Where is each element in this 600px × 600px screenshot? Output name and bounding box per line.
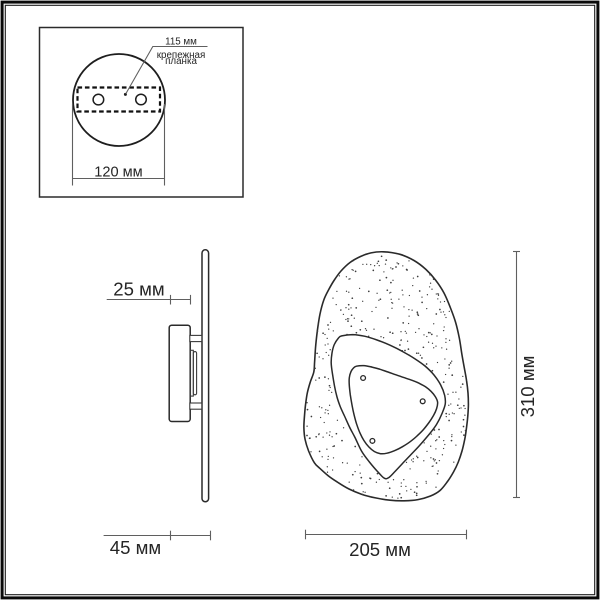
svg-text:планка: планка — [165, 56, 197, 67]
svg-text:45 мм: 45 мм — [110, 537, 161, 558]
svg-text:310 мм: 310 мм — [517, 356, 538, 418]
svg-text:120 мм: 120 мм — [94, 164, 142, 180]
svg-text:25 мм: 25 мм — [113, 279, 164, 300]
svg-text:115 мм: 115 мм — [165, 36, 197, 47]
svg-text:205 мм: 205 мм — [349, 539, 411, 560]
